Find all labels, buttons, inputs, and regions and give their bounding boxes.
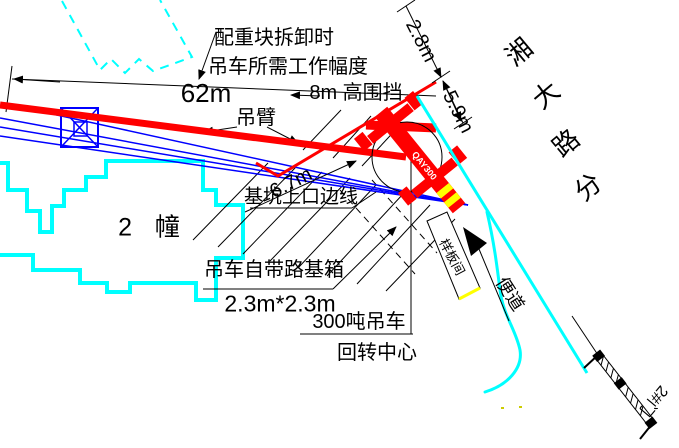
- building-2-outline: [0, 161, 243, 300]
- pit-edge-dashed-lines: [340, 180, 437, 274]
- access-road-curve: [485, 212, 520, 392]
- dashed-building-outline: [62, 0, 192, 73]
- site-plan-drawing: [0, 0, 679, 448]
- yellow-dots: [501, 406, 522, 409]
- gate-2: [572, 316, 657, 439]
- dim-62m-lines: [6, 32, 436, 112]
- sample-room-band: [427, 212, 480, 299]
- site-plan-canvas: 配重块拆卸时吊车所需工作幅度62m8m 高围挡吊臂2.8m5.9m6.7m基坑上…: [0, 0, 679, 448]
